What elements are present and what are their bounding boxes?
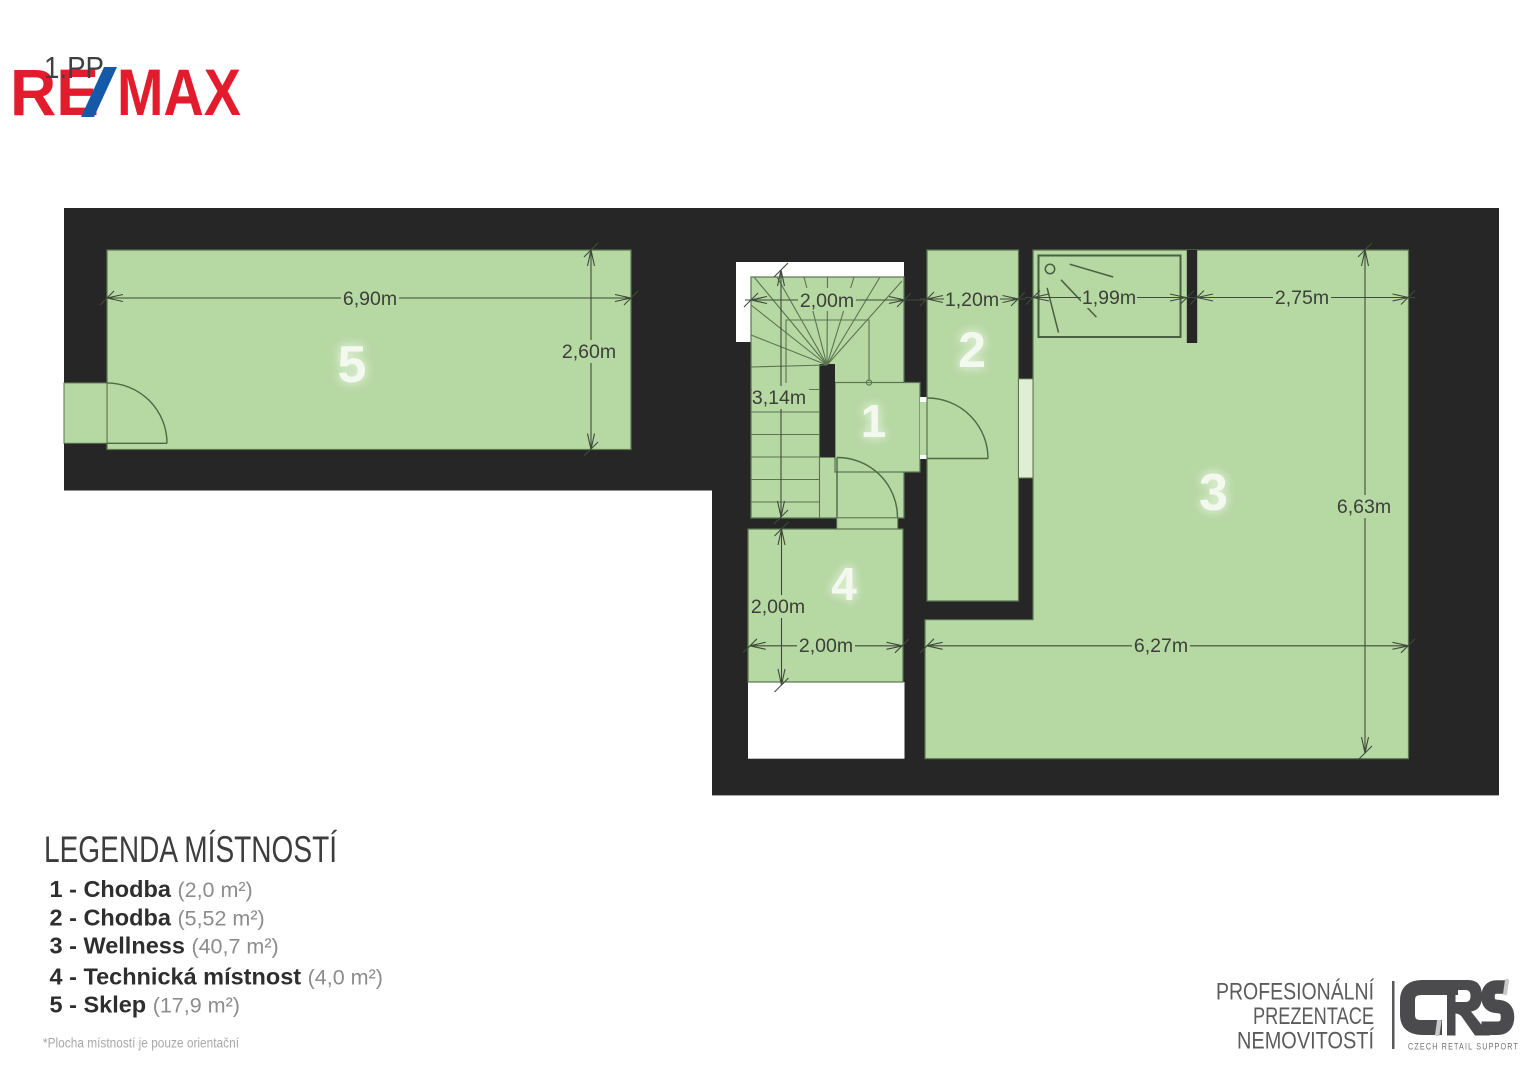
svg-text:MAX: MAX bbox=[117, 55, 241, 129]
svg-text:5: 5 bbox=[338, 336, 367, 394]
svg-text:LEGENDA MÍSTNOSTÍ: LEGENDA MÍSTNOSTÍ bbox=[44, 829, 338, 870]
svg-text:2,75m: 2,75m bbox=[1275, 287, 1329, 309]
svg-text:5 - Sklep (17,9 m²): 5 - Sklep (17,9 m²) bbox=[50, 992, 240, 1018]
svg-text:1: 1 bbox=[861, 395, 887, 447]
svg-text:6,63m: 6,63m bbox=[1337, 496, 1391, 518]
svg-text:2,60m: 2,60m bbox=[562, 341, 616, 363]
svg-text:CZECH RETAIL SUPPORT: CZECH RETAIL SUPPORT bbox=[1408, 1042, 1519, 1052]
svg-text:6,90m: 6,90m bbox=[343, 288, 397, 310]
svg-text:2 - Chodba (5,52 m²): 2 - Chodba (5,52 m²) bbox=[50, 904, 265, 930]
svg-text:6,27m: 6,27m bbox=[1134, 635, 1188, 657]
svg-text:PREZENTACE: PREZENTACE bbox=[1253, 1003, 1374, 1030]
svg-text:*Plocha místností je pouze ori: *Plocha místností je pouze orientační bbox=[43, 1036, 239, 1051]
svg-text:3 - Wellness (40,7 m²): 3 - Wellness (40,7 m²) bbox=[50, 933, 279, 959]
svg-text:1 - Chodba (2,0 m²): 1 - Chodba (2,0 m²) bbox=[50, 876, 253, 902]
svg-text:1,20m: 1,20m bbox=[945, 289, 999, 311]
svg-text:3,14m: 3,14m bbox=[752, 387, 806, 409]
svg-text:4: 4 bbox=[831, 558, 857, 610]
svg-text:PROFESIONÁLNÍ: PROFESIONÁLNÍ bbox=[1216, 979, 1374, 1006]
svg-text:2,00m: 2,00m bbox=[751, 596, 805, 618]
svg-text:1.PP: 1.PP bbox=[44, 50, 104, 85]
svg-text:1,99m: 1,99m bbox=[1082, 287, 1136, 309]
svg-text:3: 3 bbox=[1199, 464, 1228, 522]
svg-text:4 - Technická místnost (4,0 m²: 4 - Technická místnost (4,0 m²) bbox=[50, 963, 383, 989]
svg-text:2,00m: 2,00m bbox=[800, 290, 854, 312]
svg-text:2: 2 bbox=[958, 322, 986, 378]
svg-text:2,00m: 2,00m bbox=[799, 635, 853, 657]
svg-text:NEMOVITOSTÍ: NEMOVITOSTÍ bbox=[1237, 1028, 1374, 1055]
